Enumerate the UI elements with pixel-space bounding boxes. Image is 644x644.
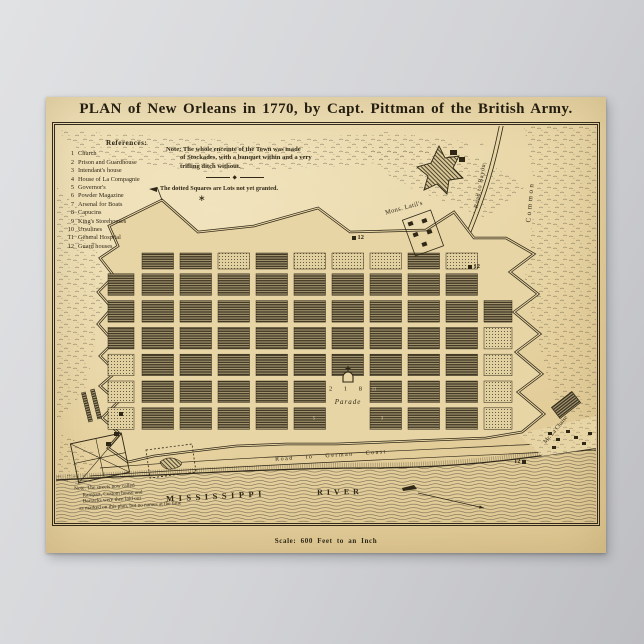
reference-item: 9King's Storehouses <box>64 218 147 226</box>
reference-item: 6Powder Magazine <box>64 192 147 200</box>
map-area: References: 1Church 2Prison and Guardhou… <box>56 126 596 522</box>
reference-item: 12Guard houses <box>64 243 147 251</box>
enceinte-note: Note: The whole enceinte of the Town was… <box>166 146 312 171</box>
star-ornament: ∗ <box>198 194 206 204</box>
guardhouse-marker-top: 12 <box>352 234 364 241</box>
reference-item: 5Governor's <box>64 184 147 192</box>
reference-item: 10Ursulines <box>64 226 147 234</box>
reference-item: 3Intendant's house <box>64 167 147 175</box>
dotted-squares-note: The dotted Squares are Lots not yet gran… <box>160 185 278 192</box>
label-parade-numbers: 2 1 8 <box>329 386 367 393</box>
label-parade: Parade <box>335 398 362 406</box>
references-legend: References: 1Church 2Prison and Guardhou… <box>64 139 147 251</box>
reference-item: 11General Hospital <box>64 234 147 242</box>
reference-item: 8Capucins <box>64 209 147 217</box>
guardhouse-marker-right: 12 <box>468 263 480 270</box>
reference-item: 7Arsenal for Boats <box>64 201 147 209</box>
references-list: 1Church 2Prison and Guardhouse 3Intendan… <box>64 150 147 251</box>
references-heading: References: <box>106 139 147 147</box>
scale-note: Scale: 600 Feet to an Inch <box>46 537 606 545</box>
block-number: 3 <box>403 417 405 422</box>
block-number: 5 <box>313 417 315 422</box>
guardhouse-marker-bottom: 12 <box>514 458 526 465</box>
product-page-background: { "poster": { "title": "PLAN of New Orle… <box>0 0 644 644</box>
street-names-note: Note: The streets now called Rampart, Cu… <box>74 480 181 512</box>
reference-item: 2Prison and Guardhouse <box>64 159 147 167</box>
map-frame-inner: References: 1Church 2Prison and Guardhou… <box>54 124 598 524</box>
block-number: 3 <box>381 417 383 422</box>
divider-ornament <box>206 176 264 179</box>
black-square-icon <box>352 236 356 240</box>
reference-item: 1Church <box>64 150 147 158</box>
reference-item: 4House of La Compagnie <box>64 176 147 184</box>
map-title: PLAN of New Orleans in 1770, by Capt. Pi… <box>46 101 606 118</box>
black-square-icon <box>468 265 472 269</box>
map-frame: References: 1Church 2Prison and Guardhou… <box>52 122 600 526</box>
vintage-map-poster: PLAN of New Orleans in 1770, by Capt. Pi… <box>46 97 606 553</box>
black-square-icon <box>522 460 526 464</box>
label-river: RIVER <box>317 487 363 497</box>
block-number: 11 <box>372 388 377 393</box>
